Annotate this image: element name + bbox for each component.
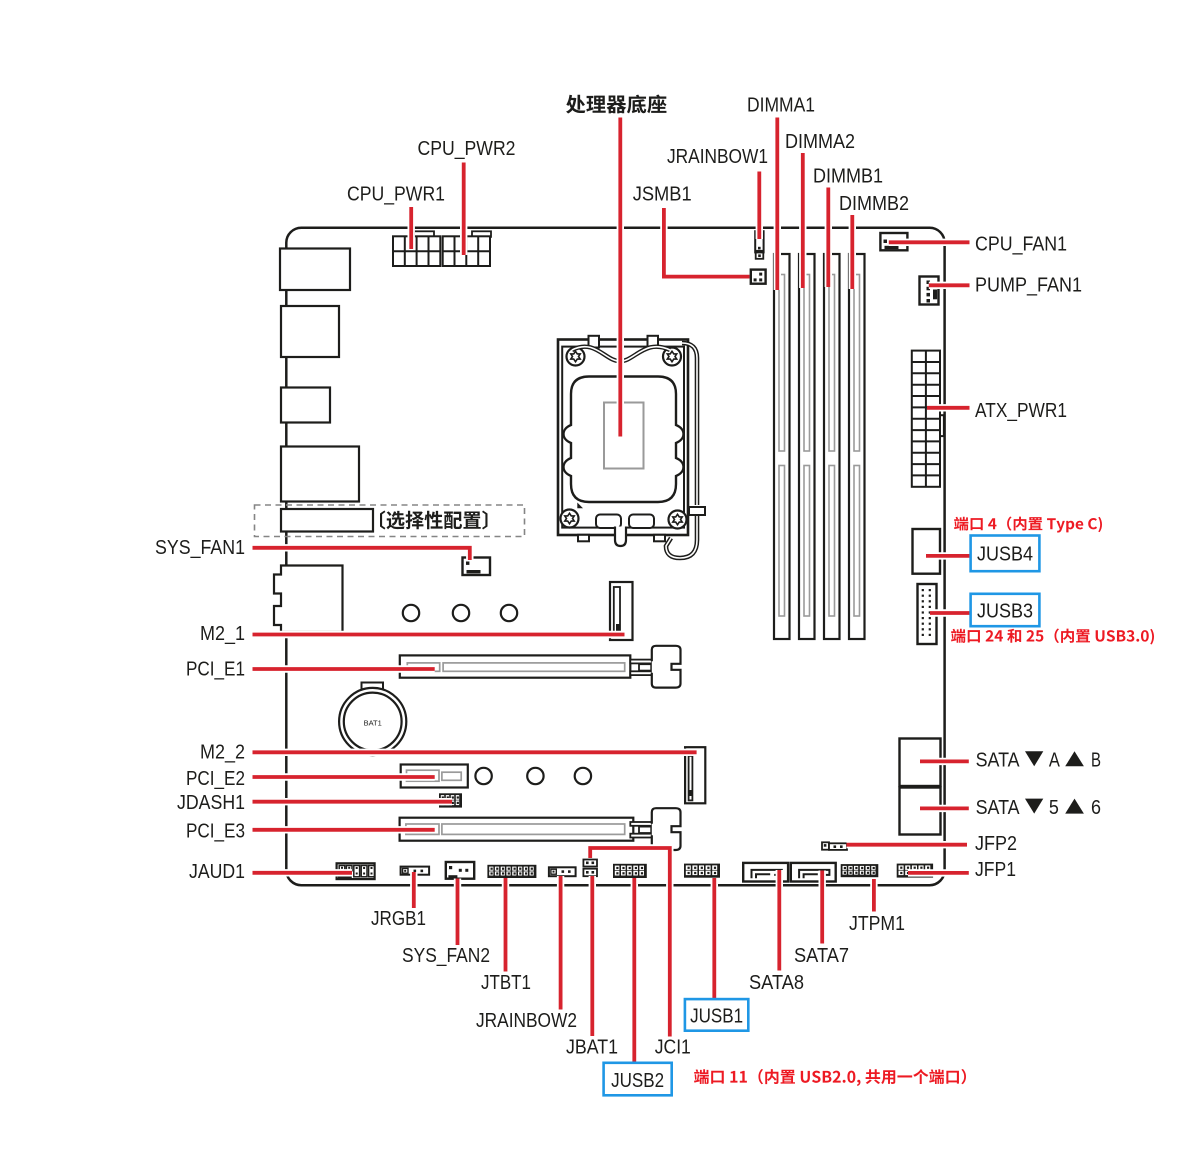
svg-text:JUSB2: JUSB2 bbox=[611, 1070, 664, 1092]
svg-text:SATA: SATA bbox=[976, 797, 1021, 819]
svg-text:DIMMB2: DIMMB2 bbox=[839, 193, 909, 215]
svg-text:6: 6 bbox=[1091, 797, 1101, 819]
svg-text:JBAT1: JBAT1 bbox=[566, 1037, 618, 1059]
svg-text:M2_2: M2_2 bbox=[200, 742, 245, 764]
svg-text:5: 5 bbox=[1049, 797, 1059, 819]
svg-text:PCI_E1: PCI_E1 bbox=[186, 659, 245, 681]
svg-text:JTPM1: JTPM1 bbox=[849, 913, 905, 935]
svg-text:SATA8: SATA8 bbox=[749, 972, 804, 994]
svg-text:M2_1: M2_1 bbox=[200, 623, 245, 645]
svg-text:JUSB1: JUSB1 bbox=[690, 1006, 743, 1028]
svg-text:JRGB1: JRGB1 bbox=[371, 908, 426, 930]
svg-text:A: A bbox=[1049, 750, 1061, 772]
svg-text:JUSB4: JUSB4 bbox=[977, 544, 1033, 566]
svg-text:JAUD1: JAUD1 bbox=[189, 861, 245, 883]
svg-text:SATA: SATA bbox=[976, 750, 1021, 772]
svg-text:DIMMA2: DIMMA2 bbox=[785, 131, 855, 153]
svg-text:JUSB3: JUSB3 bbox=[977, 600, 1033, 622]
svg-text:JRAINBOW1: JRAINBOW1 bbox=[667, 146, 768, 168]
svg-text:JSMB1: JSMB1 bbox=[633, 184, 692, 206]
svg-text:CPU_PWR2: CPU_PWR2 bbox=[418, 138, 516, 160]
svg-text:JDASH1: JDASH1 bbox=[177, 792, 245, 814]
svg-text:JTBT1: JTBT1 bbox=[481, 972, 531, 994]
svg-text:JFP1: JFP1 bbox=[975, 859, 1016, 881]
svg-text:CPU_FAN1: CPU_FAN1 bbox=[975, 234, 1067, 256]
svg-text:SYS_FAN2: SYS_FAN2 bbox=[402, 945, 490, 967]
svg-text:PCI_E3: PCI_E3 bbox=[186, 821, 245, 843]
svg-text:DIMMA1: DIMMA1 bbox=[747, 94, 815, 116]
svg-text:SYS_FAN1: SYS_FAN1 bbox=[155, 537, 245, 559]
svg-text:PCI_E2: PCI_E2 bbox=[186, 768, 245, 790]
svg-text:JCI1: JCI1 bbox=[655, 1037, 691, 1059]
svg-text:ATX_PWR1: ATX_PWR1 bbox=[975, 400, 1067, 422]
svg-text:DIMMB1: DIMMB1 bbox=[813, 166, 883, 188]
svg-text:CPU_PWR1: CPU_PWR1 bbox=[347, 184, 445, 206]
svg-text:JRAINBOW2: JRAINBOW2 bbox=[476, 1010, 577, 1032]
svg-text:SATA7: SATA7 bbox=[794, 945, 849, 967]
svg-text:JFP2: JFP2 bbox=[975, 833, 1017, 855]
svg-text:B: B bbox=[1091, 750, 1101, 772]
svg-text:BAT1: BAT1 bbox=[364, 719, 382, 728]
svg-text:PUMP_FAN1: PUMP_FAN1 bbox=[975, 275, 1082, 297]
